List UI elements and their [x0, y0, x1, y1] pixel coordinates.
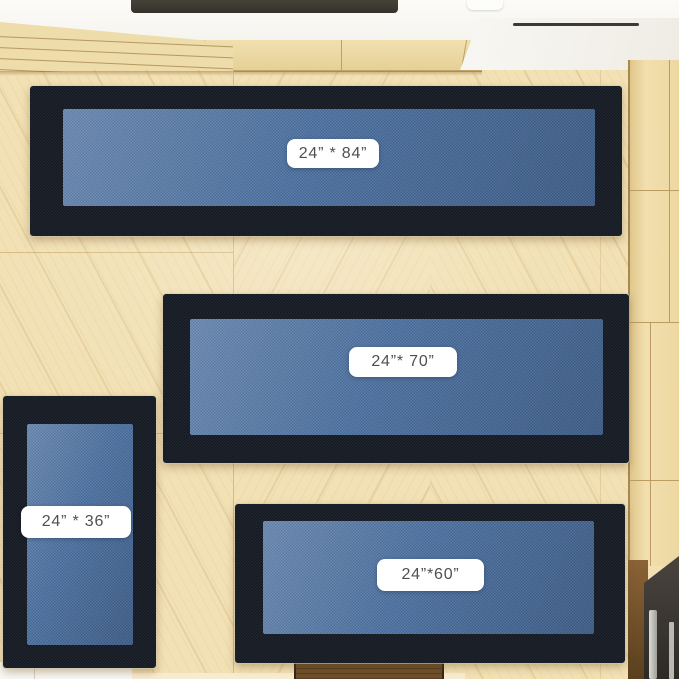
cabinet-floor-shadow [0, 71, 482, 76]
runner-rug-24x36: 24” * 36” [3, 396, 156, 668]
drawer-seam [0, 58, 233, 70]
cabinet-seam [669, 60, 670, 322]
floor-vent [294, 661, 444, 679]
cabinet-seam [630, 480, 679, 481]
size-label-pill: 24”* 70” [349, 347, 457, 377]
dishwasher-vent [513, 23, 639, 26]
size-label-pill: 24”*60” [377, 559, 484, 591]
size-label-pill: 24” * 84” [287, 139, 379, 168]
floor-seam [0, 252, 233, 253]
size-label-text: 24” * 84” [299, 145, 368, 163]
rug-pile [190, 319, 603, 435]
size-label-text: 24”* 70” [371, 353, 434, 371]
drawer-seam [0, 47, 233, 59]
cabinet-seam [630, 322, 679, 323]
size-label-pill: 24” * 36” [21, 506, 131, 538]
cabinet-seam [650, 322, 651, 566]
runner-rug-24x84: 24” * 84” [30, 86, 622, 236]
oven-handle [669, 622, 674, 679]
kitchen-rug-product-photo: 24” * 84” 24”* 70” 24” * 36” 24”*60” [0, 0, 679, 679]
size-label-text: 24” * 36” [42, 513, 111, 531]
towel-on-counter [467, 0, 503, 10]
oven-handle [649, 610, 657, 679]
stove-bar [131, 0, 398, 13]
runner-rug-24x70: 24”* 70” [163, 294, 629, 463]
tall-cabinet-panel [628, 60, 679, 566]
runner-rug-24x60: 24”*60” [235, 504, 625, 663]
cabinet-seam [341, 40, 342, 72]
cabinet-seam [630, 190, 679, 191]
size-label-text: 24”*60” [401, 566, 459, 584]
